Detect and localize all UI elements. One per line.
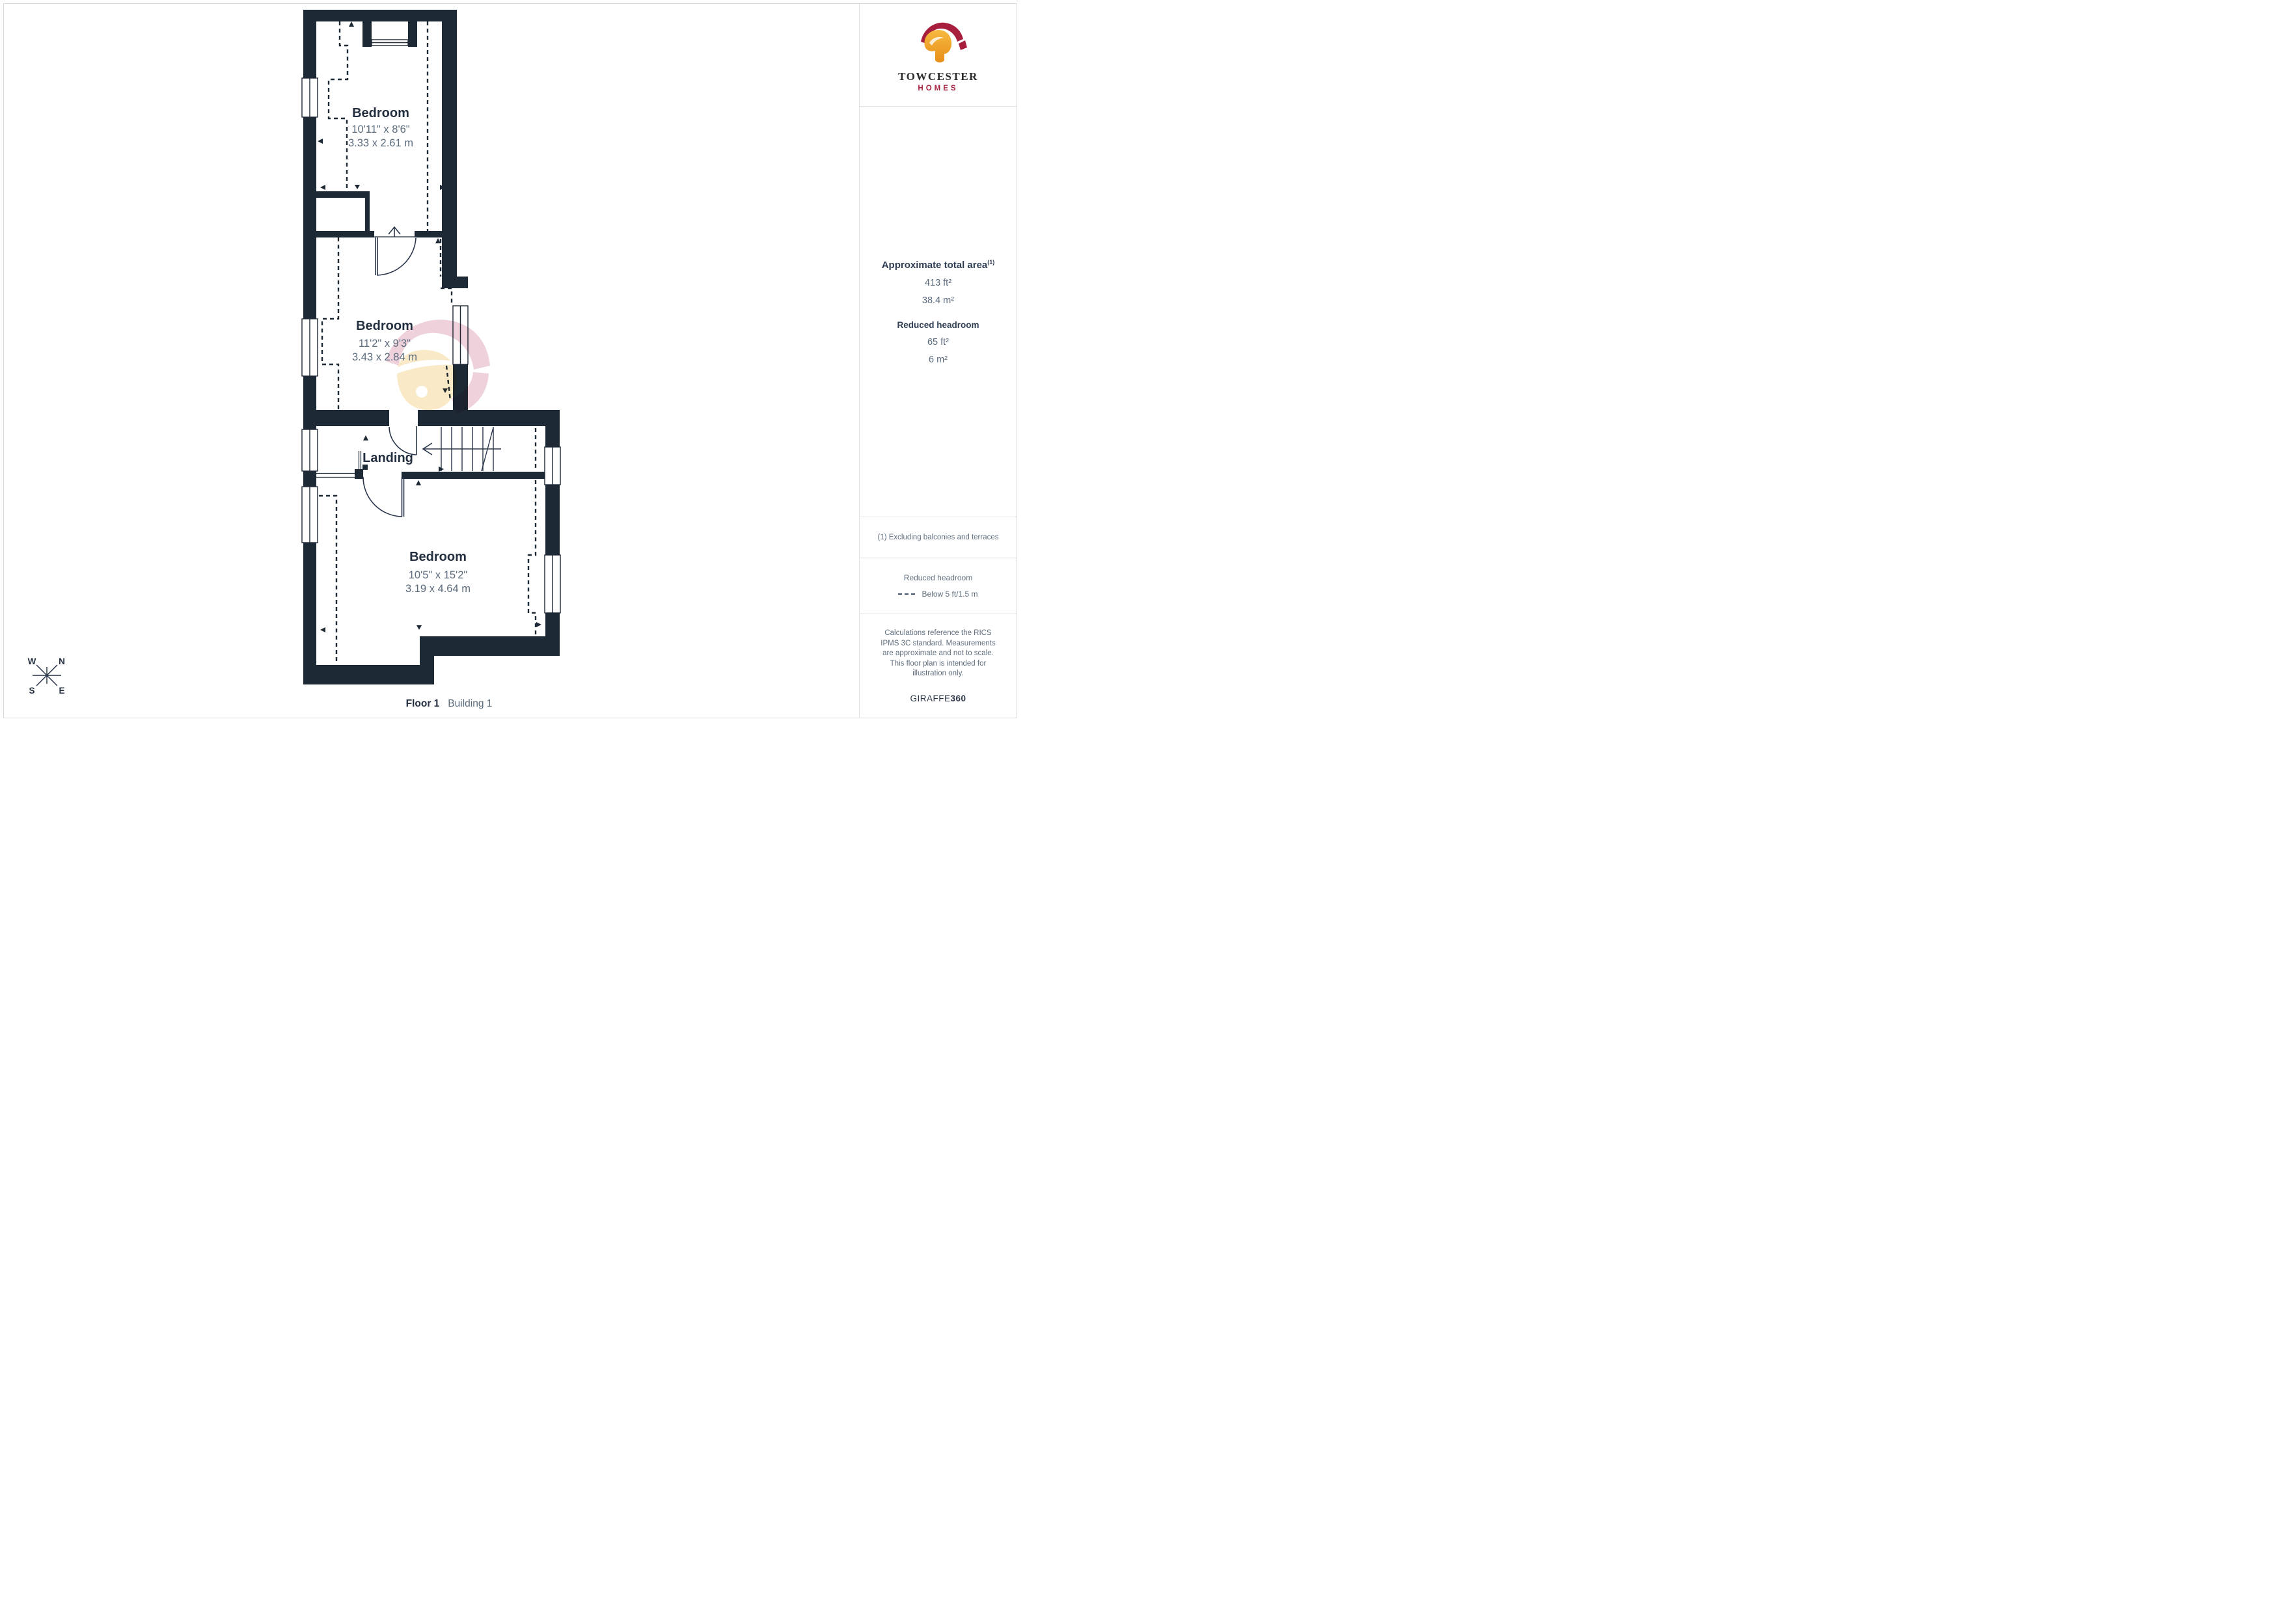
building-name: Building 1 [448, 698, 492, 710]
window-icon-wing-right-upper [545, 447, 560, 485]
room-label-landing: Landing [362, 451, 413, 465]
legend-section: Reduced headroom Below 5 ft/1.5 m [860, 558, 1017, 614]
svg-text:Landing: Landing [362, 451, 413, 465]
dashed-line-icon [898, 593, 915, 595]
room-label-bottom-bedroom: Bedroom 10'5" x 15'2" 3.19 x 4.64 m [405, 550, 471, 595]
reduced-headroom-imperial: 65 ft² [927, 337, 949, 347]
brand-section: TOWCESTER HOMES [860, 4, 1017, 107]
window-icon-top-left [302, 78, 318, 117]
footnote-text: (1) Excluding balconies and terraces [877, 534, 998, 541]
window-icon-landing-left [302, 429, 318, 471]
disclaimer-text: Calculations reference the RICS IPMS 3C … [879, 629, 998, 679]
brand-name: TOWCESTER [898, 70, 978, 83]
reduced-headroom-metric: 6 m² [929, 355, 948, 365]
area-title-text: Approximate total area [882, 260, 988, 271]
svg-text:W: W [28, 656, 36, 666]
svg-text:3.33 x 2.61 m: 3.33 x 2.61 m [348, 137, 413, 149]
svg-text:N: N [59, 656, 65, 666]
reduced-headroom-title: Reduced headroom [897, 320, 979, 330]
footnote-section: (1) Excluding balconies and terraces [860, 517, 1017, 558]
area-title-superscript: (1) [987, 259, 994, 265]
window-icon-wing-right-lower [545, 555, 560, 613]
brand-subtitle: HOMES [918, 85, 958, 92]
info-sidebar: TOWCESTER HOMES Approximate total area(1… [859, 4, 1017, 718]
area-title: Approximate total area(1) [882, 259, 995, 271]
credit-suffix: 360 [950, 694, 966, 703]
room-label-top-bedroom: Bedroom 10'11" x 8'6" 3.33 x 2.61 m [348, 106, 413, 149]
window-icon-bottom-left [302, 487, 318, 543]
legend-title: Reduced headroom [904, 573, 972, 582]
svg-text:11'2" x 9'3": 11'2" x 9'3" [359, 338, 411, 349]
disclaimer-section: Calculations reference the RICS IPMS 3C … [860, 614, 1017, 718]
window-icon-middle-left [302, 319, 318, 376]
area-section: Approximate total area(1) 413 ft² 38.4 m… [860, 107, 1017, 517]
giraffe360-credit: GIRAFFE360 [910, 694, 966, 703]
compass-rose: W N S E [28, 656, 65, 696]
total-area-metric: 38.4 m² [922, 295, 954, 306]
credit-brand: GIRAFFE [910, 694, 950, 703]
legend-item-label: Below 5 ft/1.5 m [922, 589, 977, 599]
svg-text:3.43 x 2.84 m: 3.43 x 2.84 m [352, 351, 417, 363]
towcester-homes-logo-icon [909, 18, 968, 66]
svg-text:S: S [29, 686, 34, 696]
svg-text:Bedroom: Bedroom [356, 319, 413, 333]
floor-name: Floor 1 [406, 698, 440, 710]
window-icon-top-bay [372, 40, 408, 46]
floor-label: Floor 1 Building 1 [325, 698, 573, 710]
svg-text:3.19 x 4.64 m: 3.19 x 4.64 m [405, 583, 471, 595]
svg-text:10'11" x 8'6": 10'11" x 8'6" [351, 124, 409, 135]
svg-text:Bedroom: Bedroom [409, 550, 467, 564]
total-area-imperial: 413 ft² [925, 278, 951, 288]
legend-row: Below 5 ft/1.5 m [898, 589, 977, 599]
svg-text:Bedroom: Bedroom [352, 106, 409, 120]
room-label-middle-bedroom: Bedroom 11'2" x 9'3" 3.43 x 2.84 m [352, 319, 417, 363]
svg-text:10'5" x 15'2": 10'5" x 15'2" [409, 569, 468, 581]
svg-text:E: E [59, 686, 64, 696]
